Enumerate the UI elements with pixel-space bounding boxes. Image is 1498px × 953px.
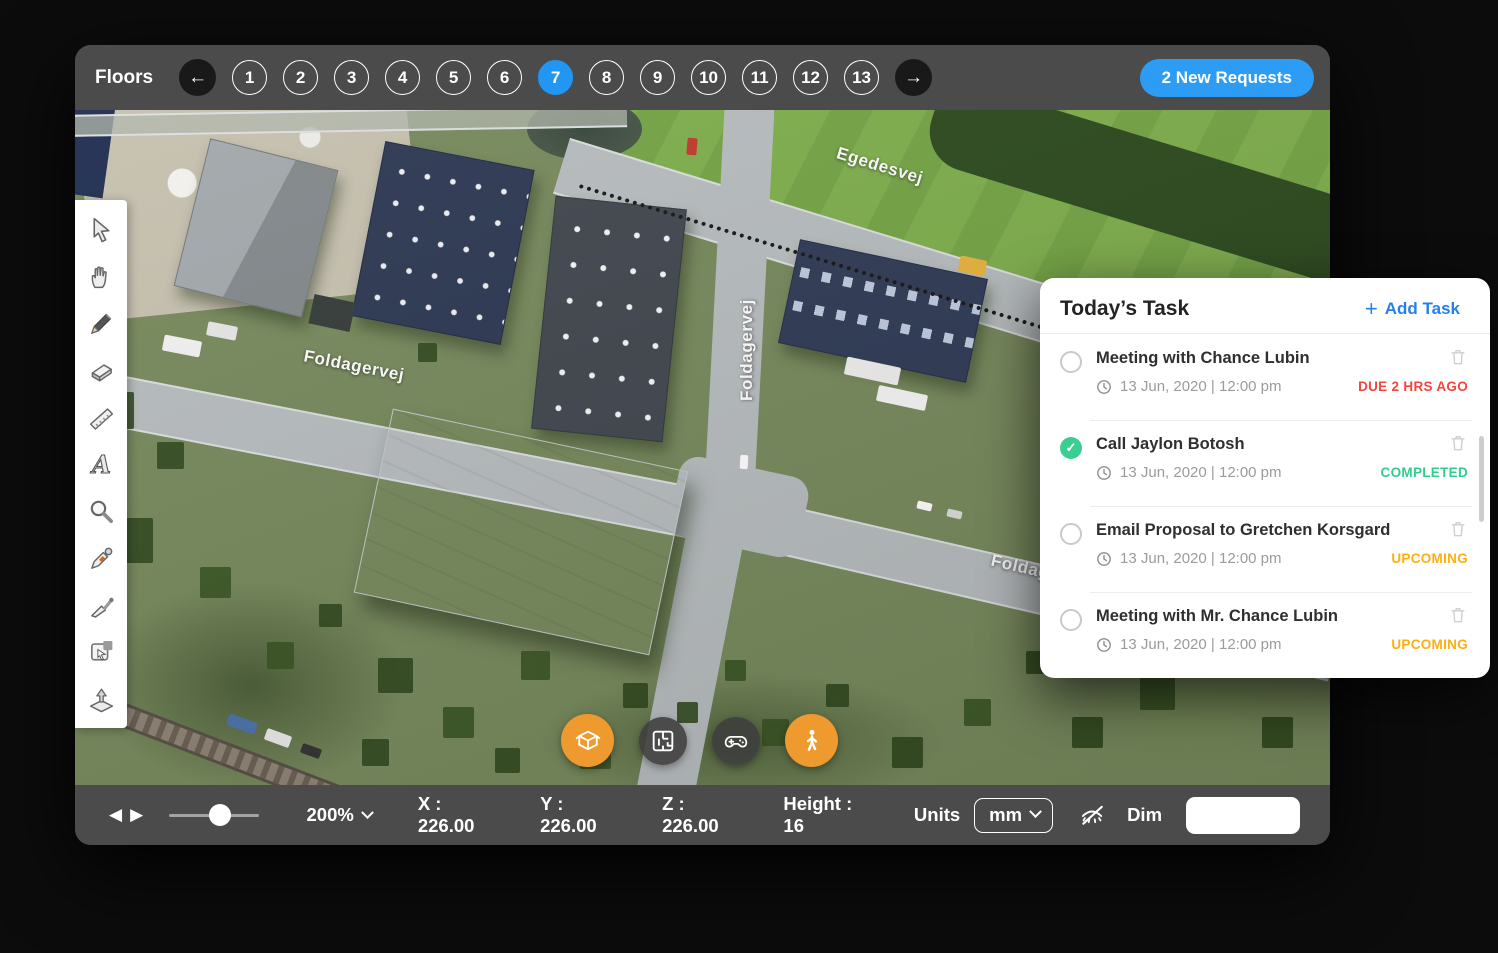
task-body: Email Proposal to Gretchen Korsgard 13 J…: [1096, 521, 1468, 592]
check-icon: ✓: [1066, 440, 1077, 455]
chevron-down-icon: [1029, 805, 1042, 818]
zoom-slider[interactable]: [169, 814, 258, 817]
clock-icon: [1096, 379, 1112, 395]
task-row: ✓ Call Jaylon Botosh 13 Jun, 2020 | 12:0…: [1040, 420, 1490, 506]
task-body: Call Jaylon Botosh 13 Jun, 2020 | 12:00 …: [1096, 435, 1468, 506]
forward-arrow-icon: →: [904, 67, 923, 89]
trash-icon: [1448, 519, 1468, 539]
floor-button-5[interactable]: 5: [436, 60, 471, 95]
coordinate-readout-x: X : 226.00: [418, 793, 494, 837]
floors-forward-button[interactable]: →: [895, 59, 932, 96]
zoom-level-value: 200%: [307, 804, 354, 826]
units-dropdown[interactable]: mm: [974, 798, 1053, 833]
task-row: Meeting with Chance Lubin 13 Jun, 2020 |…: [1040, 334, 1490, 420]
chevron-down-icon: [361, 806, 374, 819]
clock-icon: [1096, 637, 1112, 653]
eraser-icon: [87, 356, 116, 385]
task-checkbox[interactable]: [1060, 523, 1082, 545]
gamepad-view-button[interactable]: [712, 717, 760, 765]
prev-frame-button[interactable]: ◀: [105, 805, 126, 825]
task-status-badge: UPCOMING: [1391, 551, 1468, 566]
hand-tool-button[interactable]: [84, 259, 118, 293]
zoom-level-dropdown[interactable]: 200%: [307, 804, 372, 826]
magnifier-icon: [87, 497, 116, 526]
trowel-icon: [87, 591, 116, 620]
eyedropper-tool-button[interactable]: [84, 541, 118, 575]
ruler-icon: [87, 403, 116, 432]
zoom-tool-button[interactable]: [84, 494, 118, 528]
task-status-badge: UPCOMING: [1391, 637, 1468, 652]
task-checkbox[interactable]: [1060, 351, 1082, 373]
task-row: Email Proposal to Gretchen Korsgard 13 J…: [1040, 506, 1490, 592]
task-panel-scrollbar[interactable]: [1479, 436, 1484, 522]
extrude-icon: [87, 685, 116, 714]
task-title: Meeting with Mr. Chance Lubin: [1096, 607, 1338, 626]
walk-view-button[interactable]: [785, 714, 838, 767]
clock-icon: [1096, 465, 1112, 481]
units-label: Units: [914, 804, 960, 826]
floor-button-2[interactable]: 2: [283, 60, 318, 95]
walking-person-icon: [798, 727, 826, 755]
pencil-icon: [87, 309, 116, 338]
task-status-badge: DUE 2 HRS AGO: [1358, 379, 1468, 394]
task-panel-title: Today’s Task: [1060, 297, 1189, 321]
floorplan-view-button[interactable]: [639, 717, 687, 765]
coordinate-readout-y: Y : 226.00: [540, 793, 616, 837]
floors-label: Floors: [95, 67, 153, 89]
task-title: Meeting with Chance Lubin: [1096, 349, 1310, 368]
floor-button-7-selected[interactable]: 7: [538, 60, 573, 95]
back-arrow-icon: ←: [188, 67, 207, 89]
task-panel-header: Today’s Task + Add Task: [1040, 278, 1490, 334]
gamepad-icon: [722, 727, 750, 755]
floor-button-4[interactable]: 4: [385, 60, 420, 95]
floorplan-icon: [649, 727, 677, 755]
task-title: Email Proposal to Gretchen Korsgard: [1096, 521, 1390, 540]
add-task-button[interactable]: + Add Task: [1359, 297, 1466, 321]
floor-button-3[interactable]: 3: [334, 60, 369, 95]
cube-icon: [574, 727, 602, 755]
text-tool-button[interactable]: A: [84, 447, 118, 481]
floor-button-6[interactable]: 6: [487, 60, 522, 95]
floor-button-9[interactable]: 9: [640, 60, 675, 95]
task-datetime: 13 Jun, 2020 | 12:00 pm: [1120, 550, 1282, 567]
delete-task-button[interactable]: [1448, 433, 1468, 456]
new-requests-button[interactable]: 2 New Requests: [1140, 59, 1314, 97]
pencil-tool-button[interactable]: [84, 306, 118, 340]
drawing-toolbar: A: [75, 200, 127, 728]
coordinate-readout-z: Z : 226.00: [662, 793, 737, 837]
eyedropper-icon: [87, 544, 116, 573]
units-value: mm: [989, 804, 1022, 826]
task-row: Meeting with Mr. Chance Lubin 13 Jun, 20…: [1040, 592, 1490, 678]
task-status-badge: COMPLETED: [1381, 465, 1468, 480]
plus-icon: +: [1365, 298, 1378, 320]
height-readout: Height : 16: [783, 793, 868, 837]
dim-label: Dim: [1127, 804, 1162, 826]
status-bar: ◀ ▶ 200% X : 226.00 Y : 226.00 Z : 226.0…: [75, 785, 1330, 845]
hand-icon: [87, 262, 116, 291]
right-triangle-icon: ▶: [130, 805, 143, 824]
delete-task-button[interactable]: [1448, 347, 1468, 370]
area-select-tool-button[interactable]: [84, 635, 118, 669]
eraser-tool-button[interactable]: [84, 353, 118, 387]
trash-icon: [1448, 347, 1468, 367]
cube-view-button[interactable]: [561, 714, 614, 767]
trowel-tool-button[interactable]: [84, 588, 118, 622]
add-task-label: Add Task: [1385, 299, 1460, 319]
hide-dimensions-toggle[interactable]: [1079, 802, 1105, 828]
eye-slash-icon: [1079, 802, 1105, 828]
text-icon: A: [87, 450, 116, 479]
task-datetime: 13 Jun, 2020 | 12:00 pm: [1120, 464, 1282, 481]
task-body: Meeting with Mr. Chance Lubin 13 Jun, 20…: [1096, 607, 1468, 678]
extrude-tool-button[interactable]: [84, 682, 118, 716]
ruler-tool-button[interactable]: [84, 400, 118, 434]
floor-button-11[interactable]: 11: [742, 60, 777, 95]
delete-task-button[interactable]: [1448, 605, 1468, 628]
task-body: Meeting with Chance Lubin 13 Jun, 2020 |…: [1096, 349, 1468, 420]
clock-icon: [1096, 551, 1112, 567]
zoom-slider-thumb[interactable]: [209, 804, 231, 826]
left-triangle-icon: ◀: [109, 805, 122, 824]
floor-button-13[interactable]: 13: [844, 60, 879, 95]
area-select-icon: [87, 638, 116, 667]
next-frame-button[interactable]: ▶: [126, 805, 147, 825]
floor-button-1[interactable]: 1: [232, 60, 267, 95]
floors-toolbar: Floors ← 1 2 3 4 5 6 7 8 9 10 11 12 13 →…: [75, 45, 1330, 110]
task-title: Call Jaylon Botosh: [1096, 435, 1245, 454]
floor-button-12[interactable]: 12: [793, 60, 828, 95]
floors-back-button[interactable]: ←: [179, 59, 216, 96]
pointer-icon: [87, 215, 116, 244]
task-datetime: 13 Jun, 2020 | 12:00 pm: [1120, 378, 1282, 395]
delete-task-button[interactable]: [1448, 519, 1468, 542]
view-mode-bar: [561, 714, 838, 767]
task-datetime: 13 Jun, 2020 | 12:00 pm: [1120, 636, 1282, 653]
floor-button-8[interactable]: 8: [589, 60, 624, 95]
todays-task-panel: Today’s Task + Add Task Meeting with Cha…: [1040, 278, 1490, 678]
svg-text:A: A: [90, 450, 111, 479]
trash-icon: [1448, 433, 1468, 453]
floor-button-10[interactable]: 10: [691, 60, 726, 95]
task-checkbox[interactable]: [1060, 609, 1082, 631]
task-checkbox-checked[interactable]: ✓: [1060, 437, 1082, 459]
dim-input[interactable]: [1186, 797, 1300, 834]
trash-icon: [1448, 605, 1468, 625]
pointer-tool-button[interactable]: [84, 212, 118, 246]
